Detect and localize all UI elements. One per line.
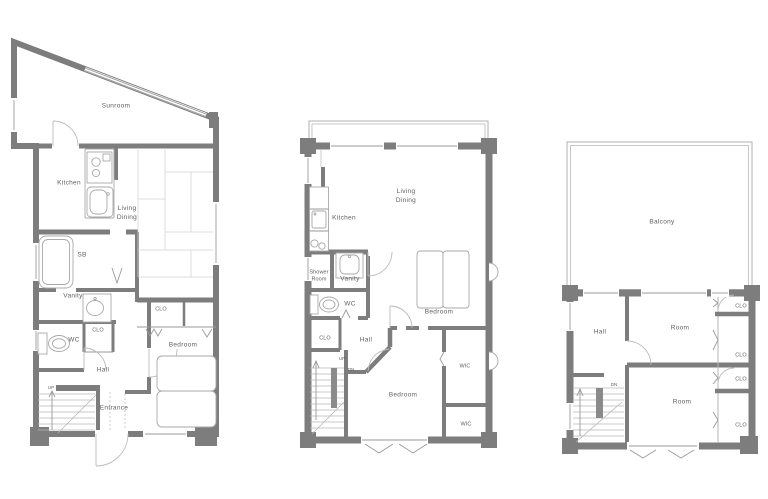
tatami-grid xyxy=(138,148,213,277)
balcony-inner-line xyxy=(571,146,749,290)
room-label-wc-2f: WC xyxy=(344,301,355,310)
wall-vent xyxy=(489,352,498,370)
sink-basin xyxy=(90,190,107,214)
room-label-wc-1f: WC xyxy=(68,337,79,346)
door-arc xyxy=(627,341,651,365)
wall xyxy=(308,350,346,440)
room-label-room-lower: Room xyxy=(673,399,692,408)
wall-pillar xyxy=(562,438,578,454)
wall-pillar xyxy=(300,432,316,448)
room-label-bedroom-lower-2f: Bedroom xyxy=(389,392,417,401)
room-label-clo-bedroom-1f: CLO xyxy=(155,306,167,313)
faucet xyxy=(107,193,110,196)
room-label-clo-2f: CLO xyxy=(319,335,331,342)
burner xyxy=(311,240,318,247)
stair-label-dn-3f: DN xyxy=(611,382,618,388)
burner xyxy=(92,158,100,166)
bed xyxy=(443,251,469,308)
wall-pillar xyxy=(744,285,760,301)
room-label-clo-1: CLO xyxy=(735,303,747,310)
floor-plans-page: Sunroom Kitchen Living Dining SB Vanity … xyxy=(0,0,768,499)
room-label-living-dining-2f: Living Dining xyxy=(391,188,421,206)
room-label-clo-4: CLO xyxy=(735,422,747,429)
stair-arrow xyxy=(577,389,583,436)
wall xyxy=(366,328,390,372)
stair-label-up-1f: UP xyxy=(48,385,54,391)
door-opening xyxy=(397,324,406,332)
toilet-seat xyxy=(53,339,66,349)
floor-plan-2 xyxy=(300,121,498,453)
burner xyxy=(319,243,325,249)
wall-vent xyxy=(489,263,498,281)
staircase-3f xyxy=(573,388,624,442)
room-label-living-dining-1f: Living Dining xyxy=(112,205,142,223)
bed xyxy=(157,391,216,427)
folding-door-symbol xyxy=(440,352,444,366)
room-label-room-upper: Room xyxy=(671,325,690,334)
wall-pillar xyxy=(481,138,497,154)
door-opening xyxy=(419,324,428,332)
door-opening xyxy=(95,430,128,439)
room-label-vanity-2f: Vanity xyxy=(340,276,359,285)
bed xyxy=(417,251,443,308)
door-opening xyxy=(368,248,392,256)
faucet xyxy=(314,213,316,215)
faucet xyxy=(94,297,96,299)
room-label-hall-3f: Hall xyxy=(594,329,606,338)
folding-door-symbol xyxy=(112,268,122,283)
burner xyxy=(92,169,99,176)
balcony-outline xyxy=(567,142,752,293)
room-label-hall-2f: Hall xyxy=(360,337,372,346)
wall-pillar xyxy=(481,432,497,448)
room-label-sunroom: Sunroom xyxy=(102,103,130,112)
toilet-seat xyxy=(323,300,335,309)
room-label-wic-lower: WIC xyxy=(461,421,472,428)
wall-pillar xyxy=(195,427,217,446)
stair-label-dn-2f: DN xyxy=(348,367,355,373)
toilet-tank xyxy=(38,333,47,354)
casement-window-symbol xyxy=(365,444,427,453)
wall-pillar xyxy=(209,112,218,128)
stove-panel xyxy=(103,154,110,161)
room-label-vanity-1f: Vanity xyxy=(63,293,82,302)
wall xyxy=(125,302,150,394)
room-label-clo-hall-1f: CLO xyxy=(92,327,104,334)
casement-window-symbol xyxy=(630,450,694,458)
room-label-wic-upper: WIC xyxy=(460,363,471,370)
room-label-hall-1f: Hall xyxy=(97,367,109,376)
stair-rail xyxy=(596,388,603,418)
stair-arrow xyxy=(313,361,319,420)
stair-label-up-2f: UP xyxy=(339,356,345,362)
room-label-clo-2: CLO xyxy=(735,352,747,359)
wall-pillar xyxy=(562,285,578,301)
staircase-2f xyxy=(310,361,344,434)
folding-door-symbol xyxy=(342,310,350,318)
room-label-kitchen-2f: Kitchen xyxy=(332,215,356,224)
toilet-tank xyxy=(310,295,318,314)
stair-rail xyxy=(331,368,337,408)
room-label-entrance: Entrance xyxy=(100,405,128,414)
balcony-inner-line xyxy=(312,124,485,143)
room-label-kitchen-1f: Kitchen xyxy=(57,180,81,189)
door-opening xyxy=(52,142,79,150)
floor-plan-3 xyxy=(562,142,760,458)
room-label-bedroom-upper-2f: Bedroom xyxy=(425,309,453,318)
room-label-bedroom-1f: Bedroom xyxy=(169,342,197,351)
staircase-1f xyxy=(38,391,96,433)
bathtub-inner xyxy=(43,240,70,285)
vanity-basin xyxy=(87,301,104,316)
bed xyxy=(157,356,216,391)
floor-plan-drawing xyxy=(0,0,768,499)
faucet xyxy=(348,255,350,257)
wall-pillar xyxy=(740,436,758,454)
room-label-sb: SB xyxy=(77,252,86,261)
door-arc xyxy=(718,295,734,311)
room-label-shower-room: Shower Room xyxy=(308,270,330,285)
room-label-balcony: Balcony xyxy=(649,219,674,228)
hanger-symbol xyxy=(146,329,212,337)
wall-pillar xyxy=(300,138,316,154)
door-arc xyxy=(718,368,734,384)
room-label-clo-3: CLO xyxy=(735,376,747,383)
